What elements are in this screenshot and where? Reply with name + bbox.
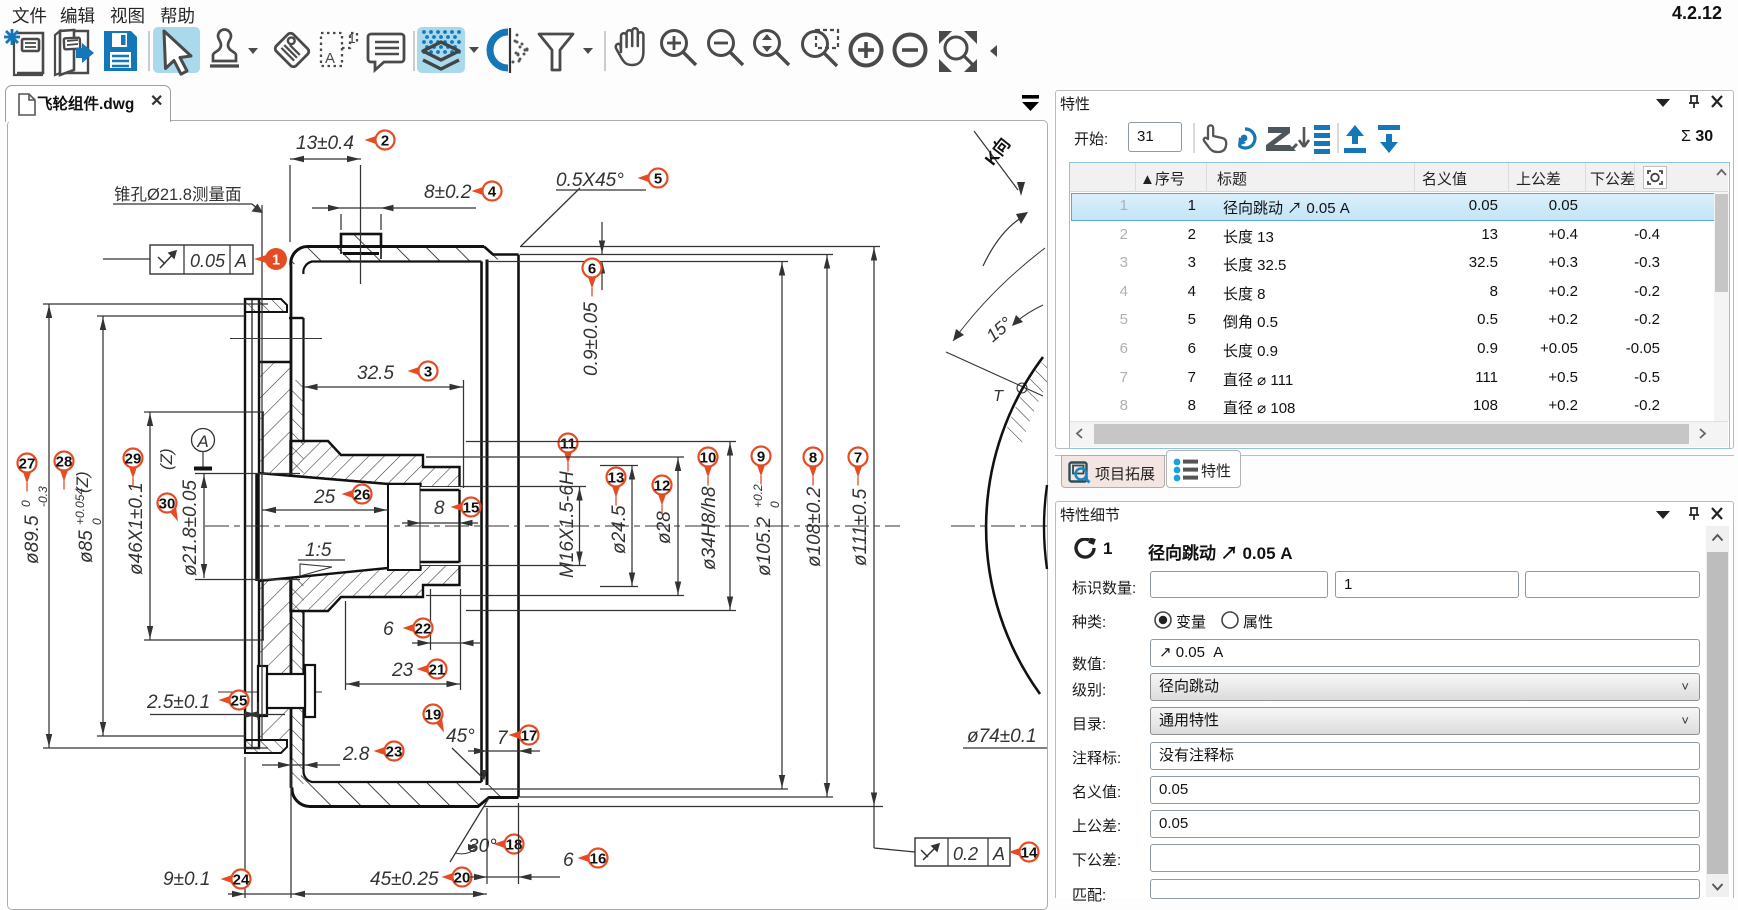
svg-text:9: 9 bbox=[757, 449, 765, 466]
svg-text:7: 7 bbox=[497, 728, 509, 749]
svg-text:32.5: 32.5 bbox=[357, 363, 394, 384]
svg-text:23: 23 bbox=[391, 660, 414, 681]
svg-text:21: 21 bbox=[429, 662, 446, 679]
svg-text:2.5±0.1: 2.5±0.1 bbox=[146, 692, 210, 713]
svg-text:8: 8 bbox=[809, 450, 817, 467]
svg-text:ø24.5: ø24.5 bbox=[609, 505, 630, 554]
svg-text:0.9±0.05: 0.9±0.05 bbox=[581, 302, 602, 376]
svg-text:45°: 45° bbox=[446, 726, 475, 747]
svg-text:ø46X1±0.1: ø46X1±0.1 bbox=[126, 482, 147, 575]
svg-text:(Z): (Z) bbox=[157, 448, 176, 470]
svg-text:ø111±0.5: ø111±0.5 bbox=[850, 488, 871, 566]
svg-text:0.05: 0.05 bbox=[190, 251, 226, 271]
svg-text:22: 22 bbox=[415, 621, 432, 638]
svg-text:5: 5 bbox=[654, 171, 662, 188]
svg-text:29: 29 bbox=[125, 451, 142, 468]
svg-text:16: 16 bbox=[590, 851, 607, 868]
svg-text:M16X1.5-6H: M16X1.5-6H bbox=[557, 471, 578, 578]
svg-text:0: 0 bbox=[19, 500, 33, 507]
svg-text:3: 3 bbox=[424, 364, 432, 381]
svg-text:T: T bbox=[993, 388, 1004, 405]
svg-text:0.2: 0.2 bbox=[953, 844, 978, 864]
svg-text:(Z): (Z) bbox=[73, 471, 92, 493]
svg-text:8±0.2: 8±0.2 bbox=[424, 182, 472, 203]
svg-text:+0.2: +0.2 bbox=[751, 484, 765, 508]
svg-text:0: 0 bbox=[768, 501, 782, 508]
svg-text:13±0.4: 13±0.4 bbox=[296, 133, 354, 154]
svg-text:-0.3: -0.3 bbox=[36, 486, 50, 507]
svg-text:2: 2 bbox=[381, 133, 389, 150]
svg-text:ø85: ø85 bbox=[76, 530, 97, 563]
svg-text:7: 7 bbox=[854, 450, 862, 467]
svg-text:14: 14 bbox=[1021, 845, 1038, 862]
svg-text:0: 0 bbox=[90, 518, 104, 525]
svg-text:30: 30 bbox=[159, 496, 176, 513]
svg-text:13: 13 bbox=[608, 470, 625, 487]
svg-text:4: 4 bbox=[488, 184, 497, 201]
svg-text:20: 20 bbox=[454, 870, 471, 887]
svg-text:1: 1 bbox=[272, 253, 280, 269]
svg-text:A: A bbox=[992, 844, 1005, 864]
svg-text:2.8: 2.8 bbox=[342, 744, 370, 765]
svg-text:25: 25 bbox=[313, 487, 336, 508]
svg-text:17: 17 bbox=[521, 728, 538, 745]
svg-text:ø74±0.1: ø74±0.1 bbox=[967, 726, 1037, 747]
svg-text:9±0.1: 9±0.1 bbox=[163, 869, 210, 890]
svg-text:26: 26 bbox=[354, 487, 371, 504]
svg-text:A: A bbox=[234, 251, 247, 271]
svg-text:15°: 15° bbox=[982, 313, 1016, 346]
svg-text:A: A bbox=[196, 432, 208, 451]
svg-text:8: 8 bbox=[434, 498, 445, 519]
svg-text:6: 6 bbox=[563, 850, 574, 871]
svg-text:23: 23 bbox=[386, 744, 403, 761]
svg-text:K向: K向 bbox=[980, 134, 1014, 169]
svg-text:ø108±0.2: ø108±0.2 bbox=[804, 486, 825, 567]
svg-text:0.5X45°: 0.5X45° bbox=[556, 170, 624, 191]
svg-text:ø105.2: ø105.2 bbox=[754, 516, 775, 576]
svg-text:24: 24 bbox=[233, 872, 250, 889]
svg-text:6: 6 bbox=[588, 261, 596, 278]
svg-text:1:5: 1:5 bbox=[305, 540, 332, 561]
svg-text:ø21.8±0.05: ø21.8±0.05 bbox=[180, 480, 201, 576]
svg-text:12: 12 bbox=[654, 478, 671, 495]
svg-text:6: 6 bbox=[383, 619, 394, 640]
svg-text:18: 18 bbox=[506, 837, 523, 854]
svg-text:27: 27 bbox=[19, 456, 36, 473]
svg-text:28: 28 bbox=[56, 454, 73, 471]
svg-text:11: 11 bbox=[560, 436, 576, 453]
svg-text:45±0.25: 45±0.25 bbox=[370, 869, 439, 890]
svg-text:10: 10 bbox=[700, 450, 717, 467]
svg-text:锥孔Ø21.8测量面: 锥孔Ø21.8测量面 bbox=[114, 185, 241, 204]
svg-text:ø28: ø28 bbox=[654, 511, 675, 544]
svg-text:ø89.5: ø89.5 bbox=[22, 515, 43, 564]
svg-text:ø34H8/h8: ø34H8/h8 bbox=[699, 486, 720, 570]
svg-text:25: 25 bbox=[231, 693, 248, 710]
svg-text:30°: 30° bbox=[468, 836, 497, 857]
svg-text:19: 19 bbox=[425, 707, 442, 724]
svg-text:15: 15 bbox=[463, 500, 480, 517]
